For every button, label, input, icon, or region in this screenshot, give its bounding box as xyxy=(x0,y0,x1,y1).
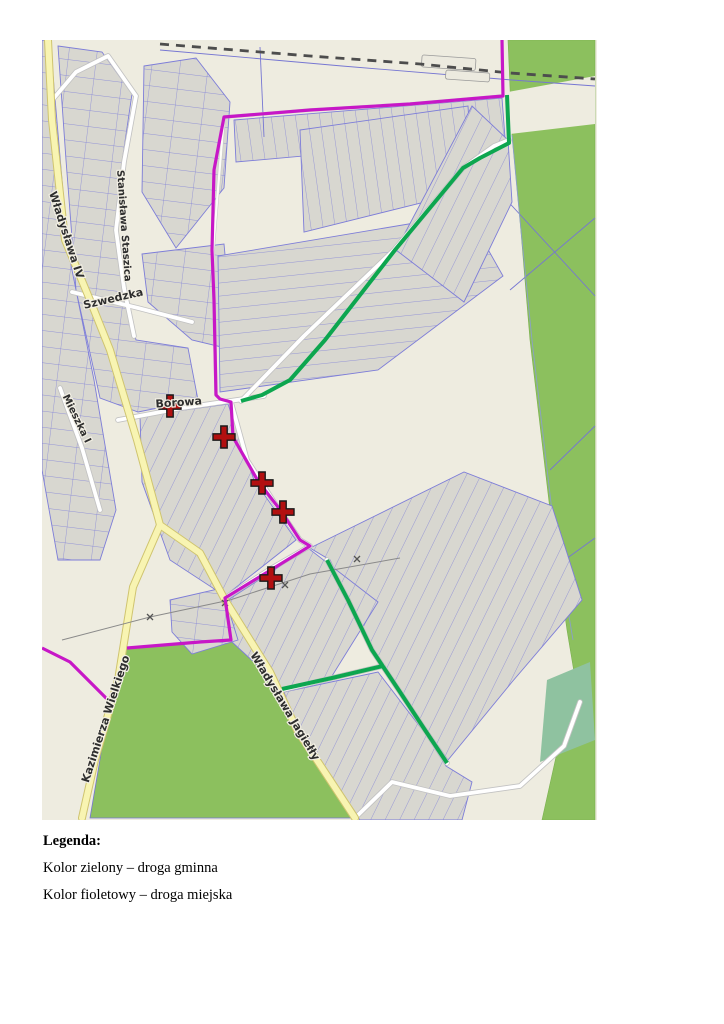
legend-item-purple-road: Kolor fioletowy – droga miejska xyxy=(43,882,232,909)
map-legend: Legenda: Kolor zielony – droga gminna Ko… xyxy=(43,828,232,909)
legend-item-green-road: Kolor zielony – droga gminna xyxy=(43,855,232,882)
map-figure: Władysława IVStanisława StaszicaSzwedzka… xyxy=(42,40,597,820)
legend-title: Legenda: xyxy=(43,828,232,855)
map-image: Władysława IVStanisława StaszicaSzwedzka… xyxy=(42,40,597,820)
document-page: Władysława IVStanisława StaszicaSzwedzka… xyxy=(0,0,724,1024)
